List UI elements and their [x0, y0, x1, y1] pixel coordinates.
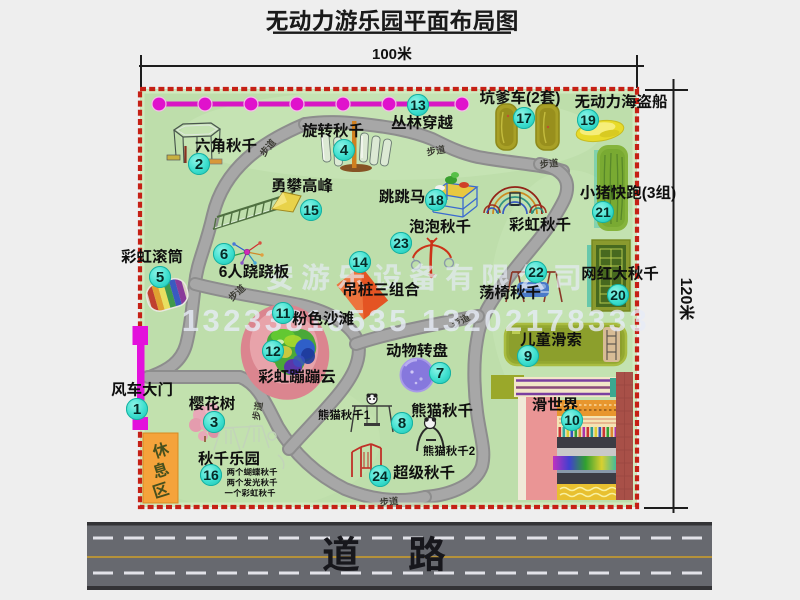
svg-text:一个彩虹秋千: 一个彩虹秋千	[224, 488, 276, 498]
svg-text:6人跷跷板: 6人跷跷板	[219, 263, 290, 281]
svg-text:19: 19	[580, 112, 596, 128]
svg-text:无动力游乐园平面布局图: 无动力游乐园平面布局图	[266, 8, 519, 34]
svg-text:100米: 100米	[372, 46, 412, 63]
svg-text:道: 道	[322, 535, 360, 577]
svg-text:彩虹蹦蹦云: 彩虹蹦蹦云	[258, 368, 336, 386]
svg-text:12: 12	[265, 343, 281, 359]
svg-text:彩虹滚筒: 彩虹滚筒	[121, 248, 183, 266]
svg-text:11: 11	[276, 305, 291, 321]
svg-text:路: 路	[408, 535, 446, 577]
svg-text:16: 16	[203, 467, 219, 483]
svg-text:丛林穿越: 丛林穿越	[391, 114, 454, 132]
svg-text:网红大秋千: 网红大秋千	[581, 265, 659, 283]
svg-text:1: 1	[133, 401, 141, 418]
svg-text:13: 13	[410, 97, 426, 113]
svg-text:4: 4	[340, 142, 349, 159]
svg-text:22: 22	[528, 264, 544, 280]
svg-text:23: 23	[393, 235, 409, 251]
svg-text:15: 15	[303, 202, 319, 218]
svg-text:9: 9	[524, 348, 532, 365]
svg-text:17: 17	[516, 110, 532, 126]
svg-text:两个蝴蝶秋千: 两个蝴蝶秋千	[226, 467, 278, 477]
svg-text:6: 6	[220, 246, 228, 263]
svg-text:勇攀高峰: 勇攀高峰	[271, 177, 334, 195]
svg-text:20: 20	[610, 287, 626, 303]
svg-text:21: 21	[595, 204, 611, 220]
svg-text:无动力海盗船: 无动力海盗船	[574, 93, 668, 111]
svg-text:步道: 步道	[539, 157, 560, 171]
svg-text:步道: 步道	[379, 495, 399, 509]
svg-text:荡椅秋千: 荡椅秋千	[479, 284, 541, 302]
svg-text:18: 18	[428, 192, 444, 208]
svg-text:旋转秋千: 旋转秋千	[302, 122, 364, 140]
svg-text:超级秋千: 超级秋千	[393, 464, 455, 482]
svg-text:两个发光秋千: 两个发光秋千	[226, 478, 278, 488]
svg-text:14: 14	[352, 254, 368, 270]
svg-text:六角秋千: 六角秋千	[195, 137, 257, 155]
svg-text:熊猫秋千2: 熊猫秋千2	[423, 445, 475, 458]
svg-text:5: 5	[156, 269, 164, 286]
svg-text:120米: 120米	[677, 278, 695, 321]
svg-text:3: 3	[210, 414, 218, 431]
svg-text:泡泡秋千: 泡泡秋千	[409, 218, 471, 236]
svg-text:吊桩三组合: 吊桩三组合	[342, 281, 420, 299]
svg-text:2: 2	[195, 156, 203, 173]
svg-text:动物转盘: 动物转盘	[386, 342, 448, 360]
svg-text:10: 10	[564, 412, 580, 428]
svg-text:熊猫秋千: 熊猫秋千	[411, 402, 473, 420]
svg-text:彩虹秋千: 彩虹秋千	[509, 216, 571, 234]
svg-text:坑爹车(2套): 坑爹车(2套)	[480, 89, 561, 107]
svg-text:24: 24	[372, 468, 388, 484]
svg-text:风车大门: 风车大门	[111, 381, 173, 399]
svg-text:跳跳马: 跳跳马	[379, 188, 426, 206]
svg-text:熊猫秋千1: 熊猫秋千1	[318, 409, 371, 422]
svg-text:樱花树: 樱花树	[189, 395, 236, 413]
svg-text:7: 7	[436, 365, 444, 382]
svg-text:小猪快跑(3组): 小猪快跑(3组)	[580, 184, 676, 202]
svg-text:8: 8	[398, 415, 406, 432]
svg-text:粉色沙滩: 粉色沙滩	[292, 310, 354, 328]
